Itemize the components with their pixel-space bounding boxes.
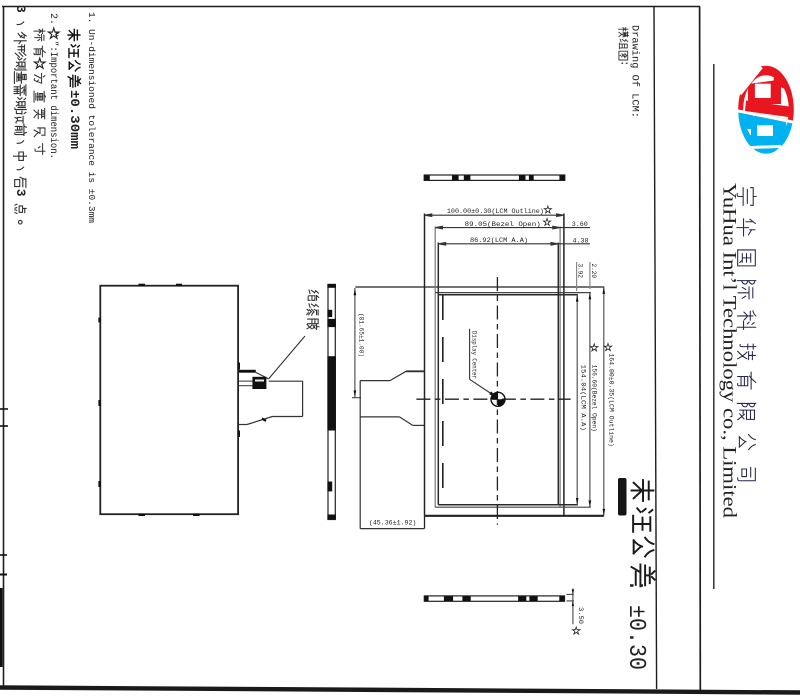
svg-text:3: 3: [13, 5, 28, 13]
svg-text:: ±0.30: : ±0.30: [622, 579, 649, 670]
svg-text:3.92: 3.92: [577, 264, 584, 279]
svg-text:3: 3: [13, 189, 28, 197]
svg-text:4.38: 4.38: [573, 237, 589, 245]
svg-text::: :: [618, 60, 630, 67]
svg-text:1. Un-dimensioned tolerance is: 1. Un-dimensioned tolerance is ±0.3mm: [86, 12, 96, 223]
svg-text:86.92(LCM A.A): 86.92(LCM A.A): [470, 237, 528, 245]
svg-text:89.05(Bezel Open): 89.05(Bezel Open): [465, 221, 541, 229]
svg-text:Drawing Of LCM:: Drawing Of LCM:: [629, 25, 641, 118]
svg-text:±0.30mm: ±0.30mm: [67, 90, 81, 150]
svg-text:Display Center: Display Center: [471, 331, 478, 379]
svg-text:YuHua Int’l Technology co., Li: YuHua Int’l Technology co., Limited: [719, 183, 740, 519]
svg-text:164.00±0.35(LCM Outline): 164.00±0.35(LCM Outline): [607, 353, 614, 446]
svg-text:2.20: 2.20: [590, 264, 597, 279]
svg-text:(81.65±1.00): (81.65±1.00): [357, 313, 365, 357]
svg-text:3.60: 3.60: [572, 221, 588, 229]
svg-text:(45.36±1.92): (45.36±1.92): [369, 520, 417, 528]
svg-text:156.60(Bezel Open): 156.60(Bezel Open): [590, 365, 597, 432]
svg-text:”:Important dimension.: ”:Important dimension.: [47, 41, 59, 159]
svg-text:3.50: 3.50: [577, 607, 584, 624]
svg-text:154.04(LCM A.A): 154.04(LCM A.A): [580, 365, 587, 431]
svg-text:100.00±0.30(LCM Outline): 100.00±0.30(LCM Outline): [447, 208, 544, 216]
